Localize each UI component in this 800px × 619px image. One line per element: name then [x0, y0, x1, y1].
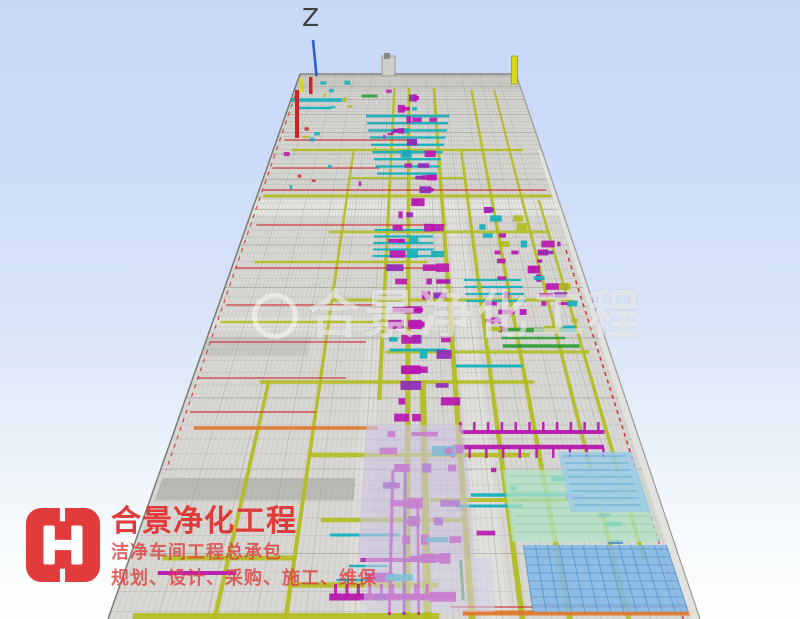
company-tagline-1: 洁净车间工程总承包 [111, 541, 377, 564]
z-axis-label: Z [302, 5, 319, 30]
company-tagline-2: 规划、设计、采购、施工、维保 [111, 567, 377, 590]
company-branding: 合景净化工程 洁净车间工程总承包 规划、设计、采购、施工、维保 [26, 506, 377, 590]
company-name: 合景净化工程 [111, 506, 377, 538]
company-text-block: 合景净化工程 洁净车间工程总承包 规划、设计、采购、施工、维保 [111, 506, 377, 590]
company-logo-icon [26, 508, 100, 582]
model-viewport: Z 合景净化工程 合景净化工程 洁净车间工程总承包 规划、设计、采购、施工、维保 [0, 0, 800, 619]
